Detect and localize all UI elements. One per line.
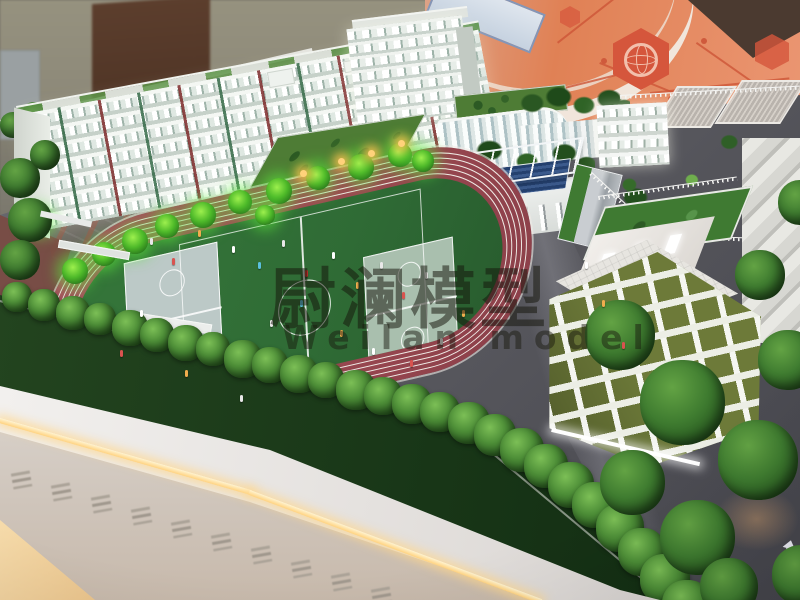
amber-lamp xyxy=(300,170,307,177)
globe-icon xyxy=(624,43,658,77)
figure xyxy=(410,360,413,367)
tree xyxy=(600,450,665,515)
calligraphy-relief-mark xyxy=(90,491,113,517)
lit-tree xyxy=(412,150,434,172)
figure xyxy=(585,262,588,269)
calligraphy-relief-mark xyxy=(130,503,153,529)
tree xyxy=(640,360,725,445)
amber-lamp xyxy=(368,150,375,157)
network-node xyxy=(601,58,607,64)
calligraphy-relief-mark xyxy=(210,529,233,555)
figure xyxy=(172,258,175,265)
calligraphy-relief-mark xyxy=(170,516,193,542)
calligraphy-relief-mark xyxy=(50,479,73,505)
lit-tree xyxy=(122,228,148,254)
network-node xyxy=(701,38,707,44)
tree xyxy=(718,420,798,500)
calligraphy-relief-mark xyxy=(10,467,33,493)
amber-lamp xyxy=(398,140,405,147)
tree xyxy=(735,250,785,300)
tree xyxy=(0,240,40,280)
calligraphy-relief-mark xyxy=(370,583,393,600)
tree xyxy=(30,140,60,170)
calligraphy-relief-mark xyxy=(330,569,353,595)
lit-tree xyxy=(62,258,88,284)
figure xyxy=(232,246,235,253)
garden-pavilion-building xyxy=(596,102,669,168)
lit-tree xyxy=(306,166,330,190)
figure xyxy=(185,370,188,377)
amber-lamp xyxy=(338,158,345,165)
calligraphy-relief-mark xyxy=(250,542,273,568)
calligraphy-relief-mark xyxy=(290,556,313,582)
lit-tree xyxy=(155,214,179,238)
watermark-subtitle: Weilan model xyxy=(282,318,654,357)
figure xyxy=(240,395,243,402)
figure xyxy=(198,230,201,237)
figure xyxy=(120,350,123,357)
figure xyxy=(602,300,605,307)
photo-of-scale-model: 尉澜模型 Weilan model xyxy=(0,0,800,600)
lit-tree xyxy=(266,178,292,204)
tree xyxy=(8,198,52,242)
lit-tree xyxy=(348,154,374,180)
lit-tree xyxy=(228,190,252,214)
figure xyxy=(140,310,143,317)
figure xyxy=(150,238,153,245)
lit-tree xyxy=(255,205,275,225)
figure xyxy=(258,262,261,269)
lit-tree xyxy=(190,202,216,228)
